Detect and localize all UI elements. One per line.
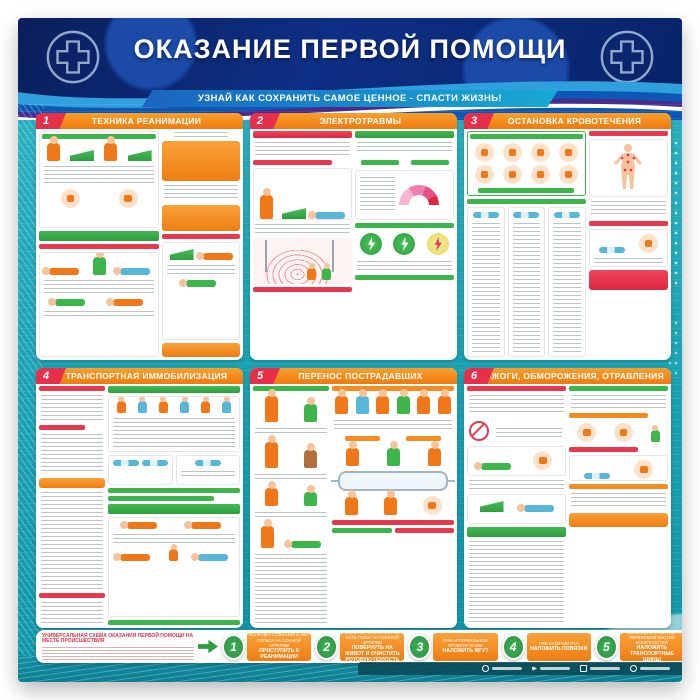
- step-number: 4: [502, 634, 525, 660]
- panel-header: 2 ЭЛЕКТРОТРАВМЫ: [250, 113, 457, 129]
- step-condition: Если есть признаки переломов костей коне…: [622, 630, 682, 645]
- lightning-icon: [393, 233, 415, 255]
- arrow-right-icon: [198, 639, 218, 655]
- footer-text-placeholder: [590, 667, 620, 670]
- panel-number-badge: 4: [36, 368, 66, 384]
- scheme-step: 5 Если есть признаки переломов костей ко…: [595, 633, 682, 661]
- first-aid-poster: ОКАЗАНИЕ ПЕРВОЙ ПОМОЩИ УЗНАЙ КАК СОХРАНИ…: [18, 18, 682, 682]
- panel-title: ПЕРЕНОС ПОСТРАДАВШИХ: [250, 371, 457, 381]
- scheme-step: 1 Если нет сознания и нет пульса на сонн…: [222, 633, 311, 661]
- panel-bleeding-control: 3 ОСТАНОВКА КРОВОТЕЧЕНИЯ: [464, 113, 671, 360]
- step-number: 1: [222, 634, 245, 660]
- step-number: 3: [408, 634, 431, 660]
- panel-title: ТЕХНИКА РЕАНИМАЦИИ: [36, 116, 243, 126]
- step-condition: Если нет сознания, но есть пульс на сонн…: [342, 630, 402, 645]
- panel-electrical-injuries: 2 ЭЛЕКТРОТРАВМЫ: [250, 113, 457, 360]
- panel-illustrations: [39, 131, 240, 357]
- step-condition: Если нет сознания и нет пульса на сонной…: [249, 632, 309, 647]
- lightning-warning-icon: [427, 233, 449, 255]
- panel-illustrations: [253, 386, 454, 625]
- footer-contact-bar: [358, 662, 682, 675]
- panel-title: ТРАНСПОРТНАЯ ИММОБИЛИЗАЦИЯ: [36, 371, 243, 381]
- scheme-step: 4 При наличии ран НАЛОЖИТЬ ПОВЯЗКИ: [502, 633, 591, 661]
- panel-illustrations: [39, 386, 240, 625]
- panel-number-badge: 6: [464, 368, 494, 384]
- step-action: ПОВЕРНУТЬ НА ЖИВОТ И ОЧИСТИТЬ РОТОВУЮ ПО…: [342, 646, 402, 664]
- panel-header: 3 ОСТАНОВКА КРОВОТЕЧЕНИЯ: [464, 113, 671, 129]
- panel-header: 1 ТЕХНИКА РЕАНИМАЦИИ: [36, 113, 243, 129]
- scheme-fine-print: [42, 647, 194, 660]
- screenshot: ОКАЗАНИЕ ПЕРВОЙ ПОМОЩИ УЗНАЙ КАК СОХРАНИ…: [0, 0, 700, 700]
- panel-header: 6 ОЖОГИ, ОБМОРОЖЕНИЯ, ОТРАВЛЕНИЯ: [464, 368, 671, 384]
- panel-number-badge: 1: [36, 113, 66, 129]
- step-number: 2: [315, 634, 338, 660]
- step-condition: При наличии ран: [539, 641, 579, 646]
- poster-title: ОКАЗАНИЕ ПЕРВОЙ ПОМОЩИ: [18, 34, 682, 65]
- footer-item: [580, 665, 620, 672]
- scheme-step: 2 Если нет сознания, но есть пульс на со…: [315, 633, 404, 661]
- email-icon: [580, 665, 587, 672]
- lightning-icon: [360, 233, 382, 255]
- scheme-description: УНИВЕРСАЛЬНАЯ СХЕМА ОКАЗАНИЯ ПЕРВОЙ ПОМО…: [42, 634, 194, 660]
- scheme-title: УНИВЕРСАЛЬНАЯ СХЕМА ОКАЗАНИЯ ПЕРВОЙ ПОМО…: [42, 634, 194, 645]
- pressure-points-diagram: [613, 142, 643, 192]
- footer-item: [630, 665, 670, 672]
- panel-carrying-victims: 5 ПЕРЕНОС ПОСТРАДАВШИХ: [250, 368, 457, 628]
- footer-item: [482, 665, 522, 672]
- subtitle-banner: УЗНАЙ КАК СОХРАНИТЬ САМОЕ ЦЕННОЕ - СПАСТ…: [142, 90, 558, 107]
- website-icon: [482, 665, 489, 672]
- footer-text-placeholder: [540, 667, 570, 670]
- panel-number-badge: 3: [464, 113, 494, 129]
- panel-burns-frostbite-poisoning: 6 ОЖОГИ, ОБМОРОЖЕНИЯ, ОТРАВЛЕНИЯ: [464, 368, 671, 628]
- telegram-icon: [532, 666, 537, 671]
- panel-title: ОЖОГИ, ОБМОРОЖЕНИЯ, ОТРАВЛЕНИЯ: [464, 371, 671, 381]
- panel-number-badge: 2: [250, 113, 280, 129]
- panel-illustrations: [253, 131, 454, 357]
- panel-number-badge: 5: [250, 368, 280, 384]
- panel-transport-immobilization: 4 ТРАНСПОРТНАЯ ИММОБИЛИЗАЦИЯ: [36, 368, 243, 628]
- no-open-flame-icon: [469, 421, 489, 441]
- panel-title: ОСТАНОВКА КРОВОТЕЧЕНИЯ: [464, 116, 671, 126]
- panel-header: 5 ПЕРЕНОС ПОСТРАДАВШИХ: [250, 368, 457, 384]
- panel-illustrations: [467, 386, 668, 625]
- step-number: 5: [595, 634, 618, 660]
- panel-header: 4 ТРАНСПОРТНАЯ ИММОБИЛИЗАЦИЯ: [36, 368, 243, 384]
- footer-item: [532, 666, 570, 671]
- step-action: ПРИСТУПИТЬ К РЕАНИМАЦИИ: [249, 649, 309, 661]
- universal-scheme-strip: УНИВЕРСАЛЬНАЯ СХЕМА ОКАЗАНИЯ ПЕРВОЙ ПОМО…: [36, 630, 682, 663]
- panel-title: ЭЛЕКТРОТРАВМЫ: [250, 116, 457, 126]
- phone-icon: [630, 665, 637, 672]
- voltage-gauge: [399, 185, 439, 205]
- panel-resuscitation: 1 ТЕХНИКА РЕАНИМАЦИИ: [36, 113, 243, 360]
- scheme-step: 3 При артериальном кровотечении НАЛОЖИТЬ…: [408, 633, 497, 661]
- step-action: НАЛОЖИТЬ ЖГУТ: [443, 649, 489, 655]
- footer-text-placeholder: [492, 667, 522, 670]
- step-action: НАЛОЖИТЬ ТРАНСПОРТНЫЕ ШИНЫ: [622, 646, 682, 664]
- step-action: НАЛОЖИТЬ ПОВЯЗКИ: [530, 647, 587, 653]
- footer-text-placeholder: [640, 667, 670, 670]
- panel-illustrations: [467, 131, 668, 357]
- step-condition: При артериальном кровотечении: [435, 638, 495, 648]
- stretcher-illustration: [338, 471, 448, 491]
